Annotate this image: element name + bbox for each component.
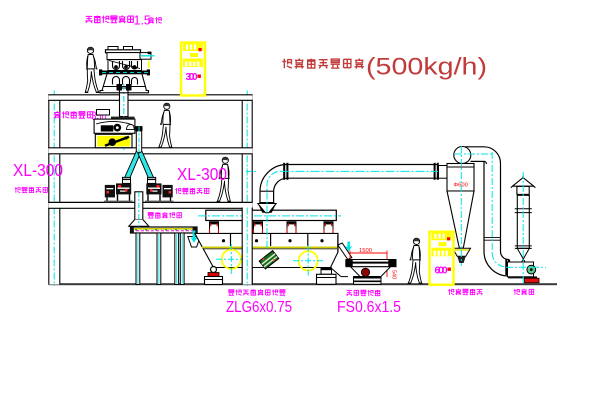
svg-text:600: 600 xyxy=(435,266,448,277)
svg-text:XL-300: XL-300 xyxy=(177,164,227,184)
svg-text:1500: 1500 xyxy=(359,248,372,254)
svg-text:XL-300: XL-300 xyxy=(13,160,63,180)
svg-text:1.5: 1.5 xyxy=(134,14,151,28)
svg-text:300: 300 xyxy=(186,72,198,83)
svg-text:ZLG6x0.75: ZLG6x0.75 xyxy=(226,299,292,316)
svg-text:540: 540 xyxy=(391,270,397,279)
svg-text:Φ600: Φ600 xyxy=(454,183,468,189)
svg-text:(500kg/h): (500kg/h) xyxy=(366,54,487,81)
svg-text:FS0.6x1.5: FS0.6x1.5 xyxy=(337,299,401,316)
